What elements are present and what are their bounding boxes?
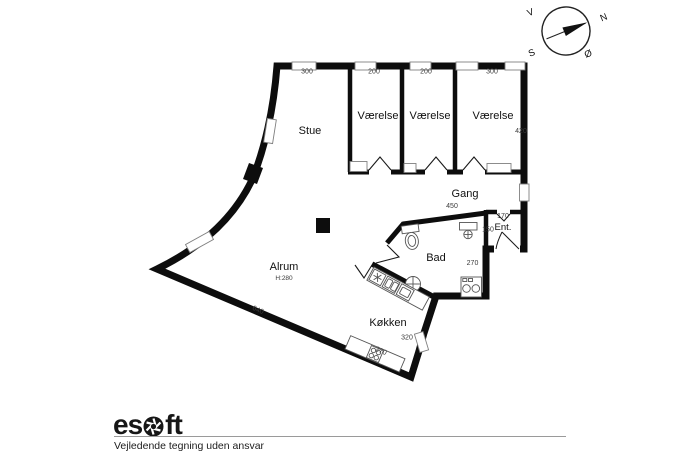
label-vaerelse-1: Værelse <box>358 110 399 122</box>
esoft-logo: es ft <box>113 411 182 439</box>
stairwell-opening <box>520 184 530 201</box>
label-koekken: Køkken <box>369 317 406 329</box>
dim-v3-width: 300 <box>486 69 498 76</box>
label-bad: Bad <box>426 252 446 264</box>
brand-text-left: es <box>113 411 142 439</box>
wardrobe-v3 <box>487 164 511 173</box>
window-v3b <box>505 62 525 70</box>
dim-bad-depth: 270 <box>467 260 479 267</box>
brand-text-right: ft <box>165 411 182 439</box>
outer-wall <box>157 66 524 377</box>
label-ent: Ent. <box>495 222 512 233</box>
compass-east-label: Ø <box>583 48 595 61</box>
compass-rose-icon: N S V Ø <box>513 0 620 80</box>
dim-ent-depth: 150 <box>482 227 494 234</box>
dim-stue-width: 300 <box>301 69 313 76</box>
compass-north-label: N <box>599 11 610 24</box>
floor-plan: Stue Værelse Værelse Værelse Gang Ent. B… <box>0 0 687 455</box>
dim-ent-width: 170 <box>497 213 509 220</box>
camera-aperture-icon <box>143 416 164 437</box>
label-alrum: Alrum <box>270 261 299 273</box>
label-vaerelse-2: Værelse <box>410 110 451 122</box>
label-vaerelse-3: Værelse <box>473 110 514 122</box>
dim-koekken-side: 320 <box>401 335 413 342</box>
column <box>316 218 330 233</box>
dim-alrum-height: H:280 <box>275 275 293 282</box>
compass-south-label: S <box>527 47 537 60</box>
dim-v1-width: 200 <box>368 69 380 76</box>
dim-v2-width: 200 <box>420 69 432 76</box>
wardrobe-v2 <box>404 164 416 173</box>
footer-divider <box>114 436 566 437</box>
label-stue: Stue <box>299 125 322 137</box>
washer-dryer-icon <box>461 277 482 297</box>
disclaimer-text: Vejledende tegning uden ansvar <box>114 440 264 452</box>
wardrobe-v1 <box>350 162 367 172</box>
compass-west-label: V <box>526 6 537 19</box>
dim-gang-width: 450 <box>446 203 458 210</box>
dim-v3-depth: 420 <box>515 128 527 135</box>
window-v3a <box>456 62 478 70</box>
label-gang: Gang <box>452 188 479 200</box>
floorplan-page: { "compass": { "west": "V", "north": "N"… <box>0 0 687 455</box>
